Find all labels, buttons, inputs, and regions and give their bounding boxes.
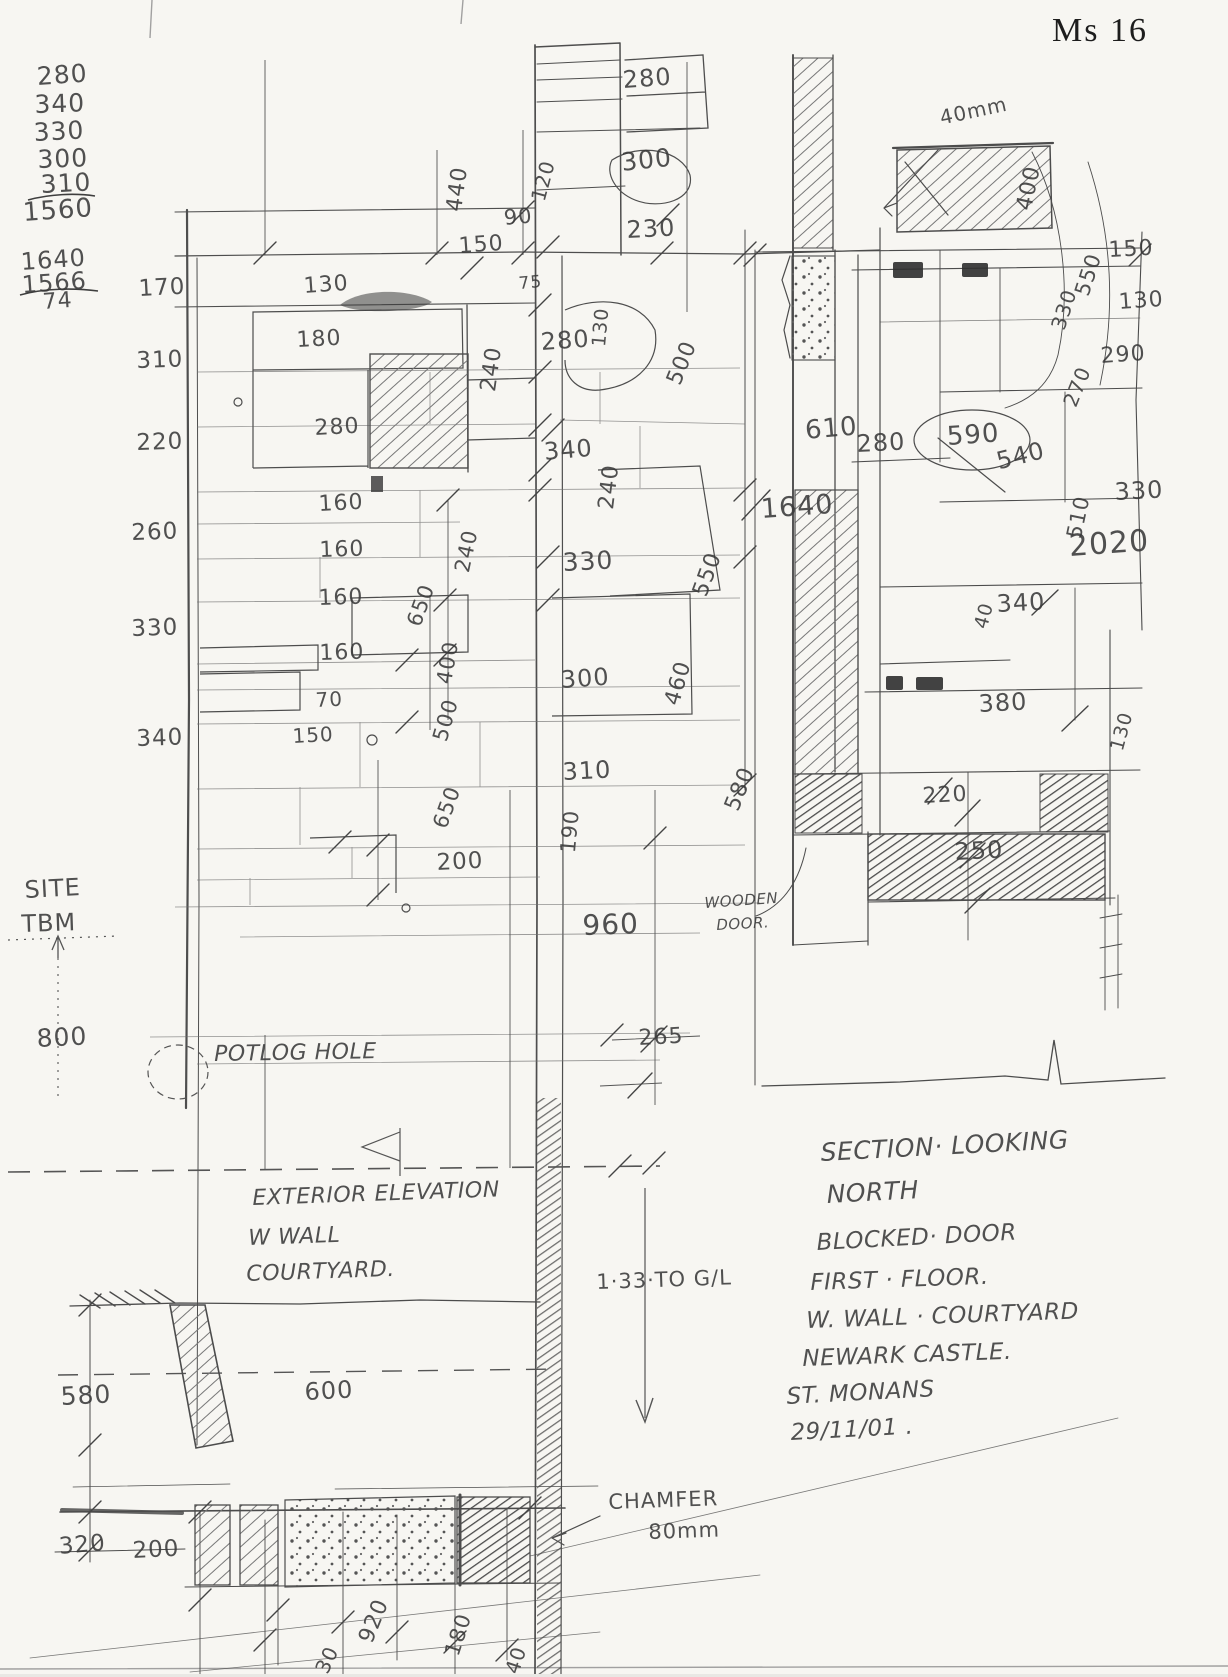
label-bottom-dims: 200 — [132, 1538, 180, 1563]
label-section-dims: 250 — [954, 837, 1004, 864]
label-elevation-dims: 240 — [596, 463, 623, 510]
label-calc-column: 330 — [33, 117, 85, 145]
label-section-dims: 2020 — [1068, 526, 1150, 562]
label-left-dims: 260 — [131, 520, 179, 545]
label-elevation-dims: 130 — [303, 273, 349, 298]
label-bottom-dims: 80mm — [648, 1519, 720, 1542]
label-section-dims: 340 — [996, 589, 1046, 616]
label-bottom-dims: 580 — [60, 1381, 112, 1409]
label-top-dims: 90 — [503, 205, 533, 228]
section-structure — [755, 55, 1165, 1086]
label-bottom-dims: 600 — [304, 1377, 354, 1404]
label-notes: NORTH — [826, 1177, 920, 1207]
label-section-dims: 150 — [1108, 238, 1154, 262]
label-elevation-dims: 130 — [590, 307, 612, 348]
label-elevation-dims: 160 — [318, 492, 364, 516]
label-elevation-dims: 960 — [582, 910, 639, 940]
label-bottom-dims: CHAMFER — [608, 1488, 719, 1513]
label-elevation-dims: 280 — [314, 416, 360, 440]
label-elevation-dims: 265 — [638, 1026, 684, 1050]
label-notes: COURTYARD. — [246, 1259, 395, 1286]
label-notes: FIRST · FLOOR. — [810, 1266, 989, 1295]
label-elevation-dims: 190 — [558, 809, 583, 854]
label-elevation-dims: 70 — [315, 689, 343, 710]
label-elevation-dims: 800 — [36, 1023, 88, 1051]
label-elevation-dims: 160 — [319, 641, 365, 665]
label-elevation-dims: 310 — [562, 757, 612, 784]
label-section-dims: 280 — [856, 429, 906, 456]
label-left-dims: 330 — [131, 616, 179, 641]
label-top-dims: 280 — [622, 65, 672, 92]
label-section-dims: 380 — [978, 689, 1028, 716]
label-elevation-dims: 200 — [436, 850, 484, 875]
label-top-dims: 300 — [620, 145, 673, 175]
label-section-dims: 220 — [922, 784, 968, 808]
label-left-dims: 340 — [136, 726, 184, 751]
label-section-dims: 590 — [946, 420, 1000, 450]
label-calc-column: 1560 — [22, 195, 94, 226]
label-elevation-dims: 160 — [319, 538, 365, 562]
label-elevation-dims: 150 — [292, 724, 334, 746]
survey-sketch-page: Ms 16 — [0, 0, 1228, 1674]
label-left-dims: 220 — [136, 430, 184, 455]
label-calc-column: 280 — [36, 60, 88, 88]
label-left-dims: 170 — [138, 276, 186, 301]
label-elevation-dims: 300 — [560, 665, 610, 692]
label-left-dims: 310 — [136, 348, 184, 373]
label-notes: W WALL — [248, 1225, 341, 1250]
label-notes: POTLOG HOLE — [214, 1041, 377, 1066]
label-elevation-dims: 160 — [318, 586, 364, 610]
label-elevation-dims: 340 — [543, 436, 594, 464]
label-section-dims: 330 — [1114, 477, 1164, 504]
label-top-dims: 150 — [458, 233, 504, 258]
label-section-dims: 290 — [1100, 343, 1146, 368]
label-section-dims: 610 — [804, 413, 859, 443]
label-notes: SITE — [24, 875, 81, 902]
label-top-dims: 75 — [518, 274, 543, 293]
label-elevation-dims: 1·33·TO G/L — [596, 1267, 732, 1293]
sketch-linework — [0, 0, 1228, 1674]
label-bottom-dims: 320 — [58, 1532, 107, 1559]
label-section-dims: 1640 — [760, 491, 834, 523]
label-section-dims: 130 — [1118, 289, 1164, 314]
label-calc-column: 340 — [34, 90, 86, 117]
label-elevation-dims: 180 — [296, 328, 342, 352]
label-notes: DOOR. — [716, 915, 770, 933]
door-jamb-hatching — [537, 1098, 561, 1674]
label-calc-column: 74 — [42, 290, 73, 314]
label-elevation-dims: 280 — [540, 327, 590, 354]
elevation-stones — [200, 302, 720, 912]
label-elevation-dims: 330 — [562, 547, 614, 575]
label-top-dims: 230 — [626, 215, 676, 242]
label-notes: TBM — [21, 910, 77, 936]
